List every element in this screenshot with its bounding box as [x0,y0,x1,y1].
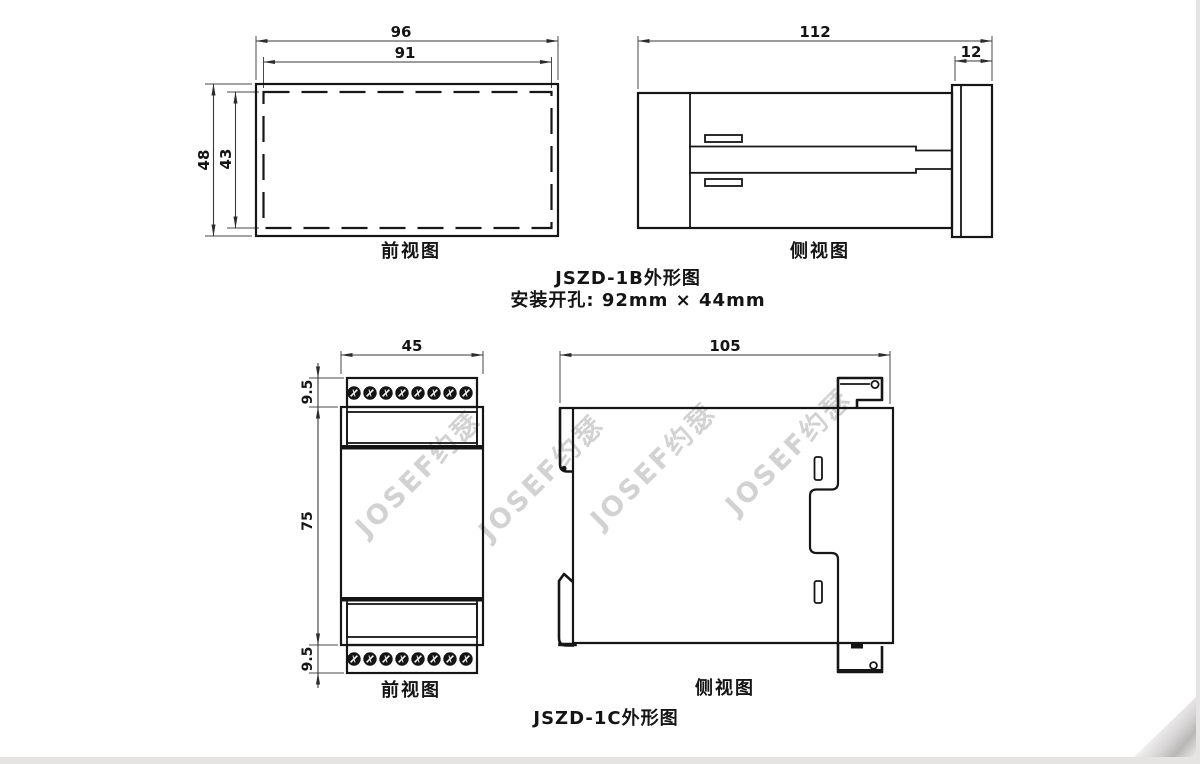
face-seam-band [342,445,482,450]
terminal-screw-icon [363,386,376,399]
terminal-screw-icon [363,652,376,665]
view-label: 侧视图 [695,677,755,699]
terminal-screw-icon [379,386,392,399]
vent-slot [705,179,742,186]
watermark-text: JOSEF约瑟 [349,405,489,545]
view-label: 前视图 [381,679,441,701]
terminal-screw-icon [411,652,424,665]
hook-pin-detail [870,662,877,669]
view-label: 侧视图 [790,240,850,262]
dim-value-12: 12 [961,43,982,61]
dim-value-9p5-top: 9.5 [300,380,316,405]
terminal-screw-icon [443,652,456,665]
terminal-screw-icon [379,652,392,665]
view-label: 前视图 [381,240,441,262]
watermark-text: JOSEF约瑟 [472,409,612,549]
terminal-screw-icon [443,386,456,399]
terminal-screw-icon [395,652,408,665]
drawing-page: JOSEF约瑟 JOSEF约瑟 JOSEF约瑟 JOSEF约瑟 96 91 48… [0,0,1200,764]
terminal-screw-icon [347,386,360,399]
terminal-screw-icon [427,652,440,665]
jszd1b-caption: JSZD-1B外形图 安装开孔: 92mm × 44mm [510,267,765,311]
terminal-screw-icon [459,386,472,399]
page-edge-shadow [0,757,1200,764]
tab-foot-detail [561,466,566,471]
jszd1b-side-view: 112 12 侧视图 [638,23,992,262]
face-seam-band [342,597,482,602]
terminal-screw-icon [347,652,360,665]
dim-value-75: 75 [300,511,316,530]
front-panel-outline [952,85,992,237]
bezel-outline [256,84,558,236]
figure-title: JSZD-1C外形图 [531,707,678,729]
mount-slot [815,457,823,480]
dim-value-96: 96 [391,23,412,41]
plug-tongue-top [690,147,952,151]
terminal-screw-icon [459,652,472,665]
relay-body-outline [638,93,952,228]
body-hidden-outline [264,92,552,228]
dim-value-45: 45 [402,337,423,355]
dim-value-43: 43 [217,149,235,170]
dim-value-48: 48 [195,150,213,171]
technical-drawing-canvas: JOSEF约瑟 JOSEF约瑟 JOSEF约瑟 JOSEF约瑟 96 91 48… [0,0,1200,764]
dim-value-9p5-bottom: 9.5 [300,647,316,672]
dim-value-112: 112 [799,23,830,41]
plug-tongue-bottom [690,169,952,173]
vent-slot [705,135,742,142]
terminal-screw-icon [411,386,424,399]
dim-value-91: 91 [395,44,416,62]
recessed-panel-bottom [347,604,477,637]
terminal-screw-icon [427,386,440,399]
mount-slot [815,581,823,603]
din-rail-clip-bottom [559,574,574,646]
terminal-screw-icon [395,386,408,399]
watermark-text: JOSEF约瑟 [584,397,724,537]
figure-title: JSZD-1B外形图 [553,267,701,289]
dim-value-105: 105 [709,337,740,355]
hook-pin-detail [871,381,878,388]
jszd1c-caption: JSZD-1C外形图 [531,707,678,729]
mounting-hole-note: 安装开孔: 92mm × 44mm [510,289,765,311]
jszd1b-front-view: 96 91 48 43 前视图 [195,23,558,262]
page-edge-shadow [1196,0,1200,764]
hook-tab-detail [851,643,863,649]
